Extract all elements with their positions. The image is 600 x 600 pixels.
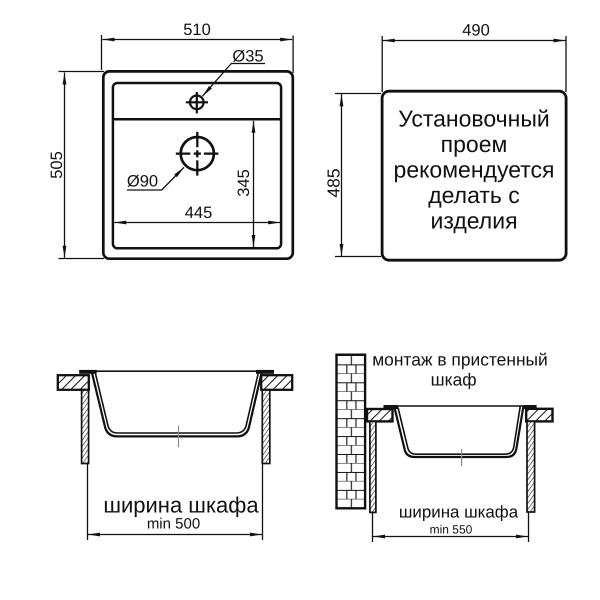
svg-text:проем: проем [441, 131, 508, 157]
svg-text:505: 505 [48, 151, 66, 179]
svg-text:шкаф: шкаф [431, 370, 477, 390]
svg-text:min 550: min 550 [430, 523, 473, 537]
svg-text:Ø90: Ø90 [127, 172, 158, 190]
svg-text:ширина шкафа: ширина шкафа [399, 503, 519, 522]
svg-text:345: 345 [235, 169, 253, 197]
svg-text:485: 485 [324, 168, 344, 197]
svg-text:min 500: min 500 [147, 516, 200, 533]
svg-text:Ø35: Ø35 [232, 48, 263, 66]
svg-text:Установочный: Установочный [398, 106, 549, 132]
svg-text:445: 445 [185, 204, 213, 222]
svg-text:рекомендуется: рекомендуется [394, 157, 555, 183]
svg-text:ширина шкафа: ширина шкафа [103, 493, 259, 518]
svg-text:монтаж в пристенный: монтаж в пристенный [372, 350, 548, 370]
svg-text:делать с: делать с [428, 182, 520, 208]
svg-text:510: 510 [183, 21, 211, 39]
svg-text:490: 490 [462, 22, 490, 40]
svg-text:изделия: изделия [430, 208, 517, 234]
